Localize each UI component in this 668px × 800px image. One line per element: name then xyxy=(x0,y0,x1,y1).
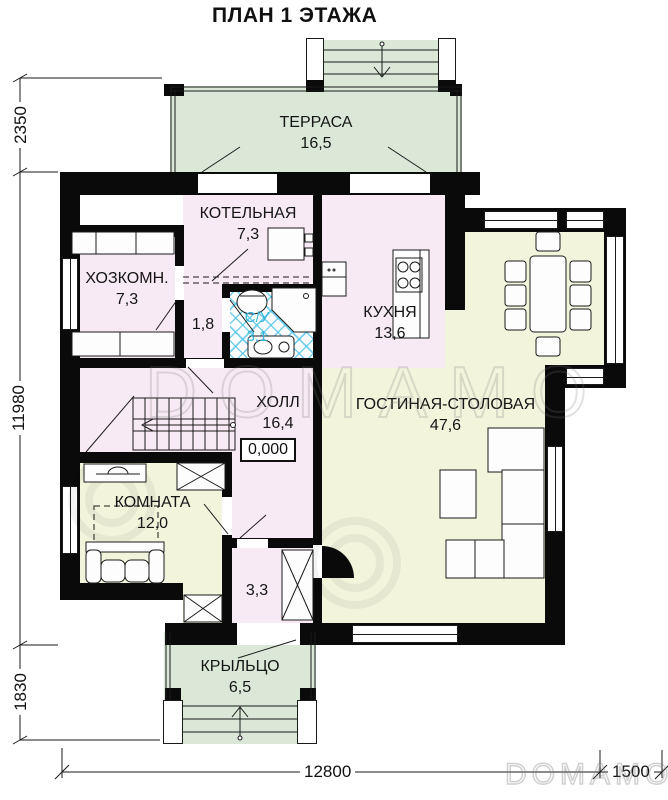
room-label-boiler: КОТЕЛЬНАЯ 7,3 xyxy=(173,203,323,245)
terrace-steps xyxy=(324,42,438,77)
coffee-table xyxy=(440,470,476,518)
dim-label-2350: 2350 xyxy=(11,102,31,148)
room-label-terrace: ТЕРРАСА 16,5 xyxy=(236,112,396,154)
dim-label-1500: 1500 xyxy=(608,762,654,782)
room-label-utility: ХОЗКОМН. 7,3 xyxy=(60,268,194,310)
room-label-porch: КРЫЛЬЦО 6,5 xyxy=(165,656,315,698)
room-label-living: ГОСТИНАЯ-СТОЛОВАЯ 47,6 xyxy=(323,394,568,436)
dim-label-11980: 11980 xyxy=(9,381,29,435)
dim-label-1830: 1830 xyxy=(11,669,31,715)
elevation-mark: 0,000 xyxy=(240,438,296,462)
room-label-bedroom: КОМНАТА 12,0 xyxy=(85,492,220,534)
room-label-hall: ХОЛЛ 16,4 xyxy=(235,392,321,434)
dining-set xyxy=(505,232,591,356)
kitchen-fridge xyxy=(322,262,346,296)
room-label-bathroom: С/У 3,1 xyxy=(228,308,286,346)
entrance-door-leaf xyxy=(322,546,354,578)
staircase xyxy=(86,396,236,452)
tambour-wardrobe xyxy=(282,550,313,620)
room-label-corridor: 1,8 xyxy=(183,314,223,335)
room-label-tambour: 3,3 xyxy=(235,580,279,601)
page-title: ПЛАН 1 ЭТАЖА xyxy=(212,4,377,28)
room-label-kitchen: КУХНЯ 13,6 xyxy=(325,302,455,344)
bedroom-wardrobe-2 xyxy=(184,595,222,622)
bedroom-wardrobe xyxy=(177,463,225,490)
dim-label-12800: 12800 xyxy=(300,762,355,782)
floor-plan: ПЛАН 1 ЭТАЖА xyxy=(0,0,668,800)
bedroom-desk xyxy=(84,464,146,482)
